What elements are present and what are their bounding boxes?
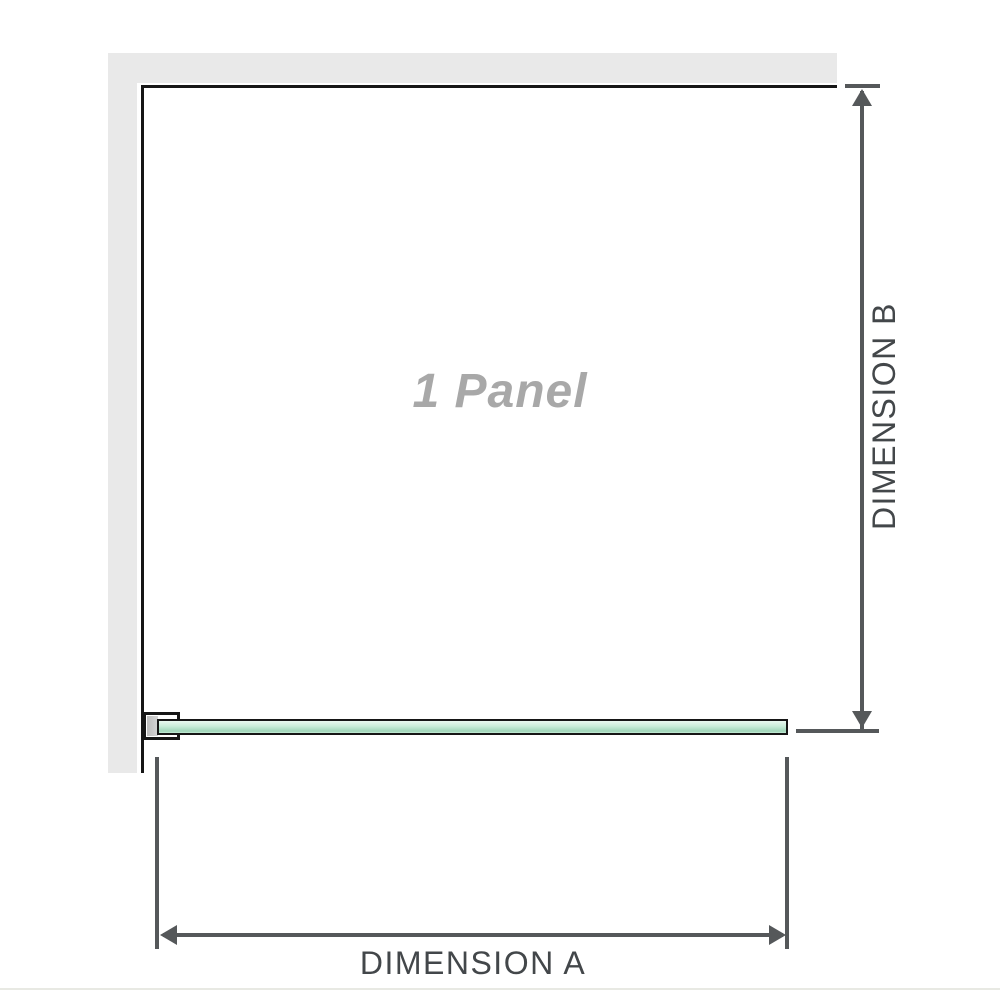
arrow-down-icon [852,711,872,728]
dimension-b-bottom-tick [796,729,879,733]
panel-top-edge-line [141,85,837,88]
arrow-up-icon [852,89,872,106]
panel-count-label: 1 Panel [300,368,700,416]
wall-top [108,53,837,83]
dimension-b-label: DIMENSION B [867,266,901,566]
diagram-canvas: 1 Panel DIMENSION B DIMENSION A [0,0,1000,1000]
arrow-right-icon [769,925,786,945]
wall-left [108,53,137,773]
glass-panel-bar [157,719,788,735]
dimension-b-line [860,91,864,729]
dimension-a-right-extension-line [785,757,789,949]
bottom-separator-line [0,988,1000,990]
dimension-a-line [163,933,783,937]
panel-left-edge-line [141,85,144,773]
dimension-a-left-extension-line [155,757,159,949]
dimension-a-label: DIMENSION A [160,946,786,980]
dimension-b-top-tick [845,84,880,88]
arrow-left-icon [160,925,177,945]
